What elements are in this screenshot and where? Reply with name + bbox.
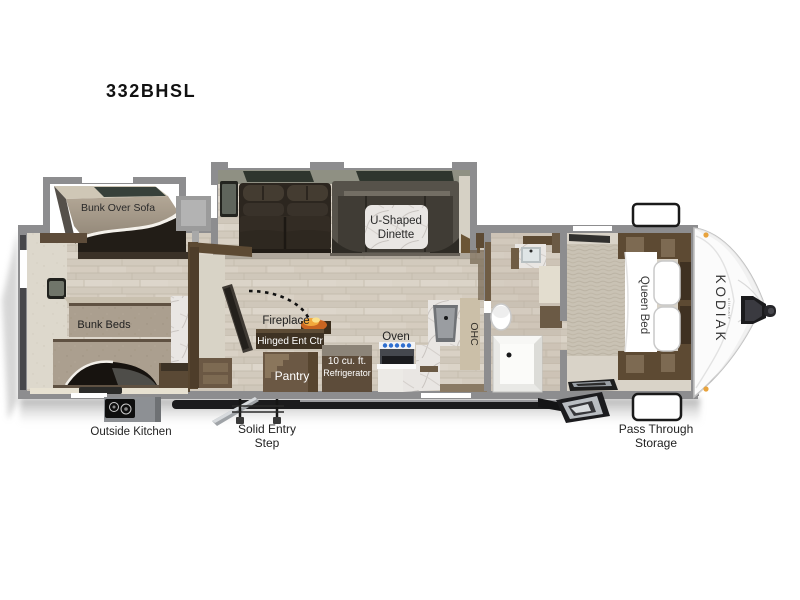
svg-text:Fireplace: Fireplace [262,315,309,327]
svg-text:Outside Kitchen: Outside Kitchen [90,426,171,438]
svg-text:10 cu. ft.: 10 cu. ft. [328,356,366,367]
svg-text:Step: Step [255,436,280,450]
svg-text:Oven: Oven [382,331,410,343]
svg-text:Bunk Over Sofa: Bunk Over Sofa [81,202,155,214]
svg-text:OHC: OHC [468,322,480,346]
svg-text:Pantry: Pantry [275,369,310,383]
svg-text:Refrigerator: Refrigerator [323,368,371,378]
svg-text:Storage: Storage [635,436,677,450]
svg-text:Solid Entry: Solid Entry [238,422,296,436]
svg-text:KODIAK: KODIAK [713,274,728,343]
svg-text:Dinette: Dinette [378,229,414,241]
svg-text:ultimate: ultimate [727,298,732,320]
svg-text:Hinged Ent Ctr: Hinged Ent Ctr [257,336,323,347]
svg-text:Pass Through: Pass Through [619,422,694,436]
svg-text:Queen Bed: Queen Bed [638,276,650,334]
svg-text:332BHSL: 332BHSL [106,81,196,101]
svg-text:U-Shaped: U-Shaped [370,215,422,227]
svg-text:Bunk Beds: Bunk Beds [77,319,131,331]
